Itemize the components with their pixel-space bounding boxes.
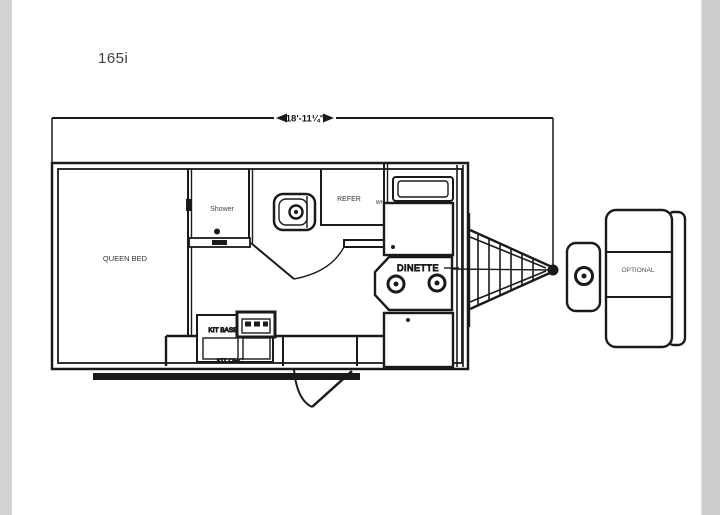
dinette-label: DINETTE — [397, 263, 439, 273]
wall-latch-mark — [186, 199, 192, 211]
coupler-icon — [548, 265, 559, 276]
dinette-area: DINETTE — [375, 203, 459, 367]
optional-label: OPTIONAL — [622, 267, 655, 274]
floorplan-drawing: 18'-11¼" QUEEN BED Shower — [0, 0, 720, 515]
kit-ohc-label: KIT OHC — [217, 358, 244, 365]
kit-base-label: KIT BASE — [208, 327, 238, 334]
exterior-bottom — [93, 370, 360, 407]
front-window — [393, 177, 453, 201]
dinette-bench-bottom — [384, 313, 453, 367]
bumper-rail — [93, 373, 360, 380]
shower-door-track — [212, 240, 227, 245]
optional-storage-box: OPTIONAL — [606, 210, 685, 347]
queen-bed-label: QUEEN BED — [103, 254, 148, 263]
shower-drain-icon — [214, 229, 220, 235]
dimension-length-label: 18'-11¼" — [286, 114, 324, 125]
tongue-jack — [567, 243, 600, 311]
shower-label: Shower — [210, 206, 234, 213]
refer-label: REFER — [337, 196, 361, 203]
floorplan-page: 165i 18'-11¼" QUEEN BED — [0, 0, 720, 515]
